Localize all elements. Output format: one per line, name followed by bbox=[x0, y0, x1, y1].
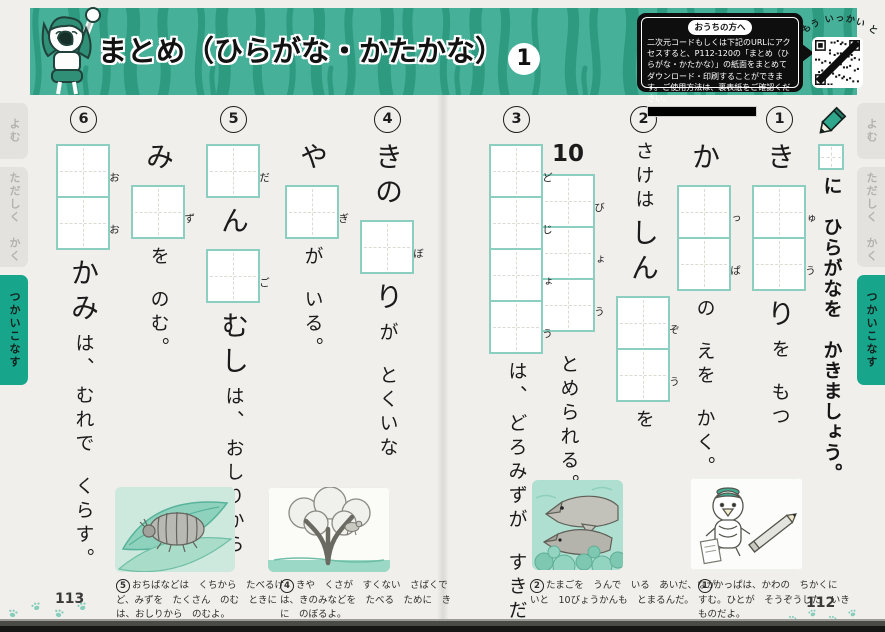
exercise-text: は、 bbox=[224, 386, 243, 434]
side-tab-label: よむ bbox=[863, 118, 879, 144]
answer-hint: び bbox=[592, 202, 607, 213]
exercise-number: 3 bbox=[503, 106, 530, 133]
exercise-text: り bbox=[373, 282, 401, 317]
qr-code-pattern bbox=[815, 40, 860, 85]
exercise-text: むし bbox=[219, 311, 247, 381]
exercise-text: を bbox=[770, 339, 789, 363]
exercise-text: は、 bbox=[507, 361, 526, 409]
side-tab-tsukaikonasu[interactable]: つかいこなす bbox=[857, 275, 885, 385]
exercise-text: いる。 bbox=[303, 289, 322, 361]
qr-caption-text: もう いっかい とく! bbox=[793, 4, 880, 37]
exercise-columns: さけはしんぞうを10びょうとめられる。 bbox=[537, 139, 674, 500]
answer-box[interactable]: う bbox=[489, 300, 543, 354]
instruction-text: に ひらがなを かきましょう。 bbox=[822, 176, 841, 484]
answer-box[interactable]: お bbox=[56, 144, 110, 198]
redacted-url-bar bbox=[647, 106, 757, 117]
exercise-columns: おおかみは、むれでくらす。 bbox=[52, 139, 114, 574]
exercise-text: とめられる。 bbox=[559, 354, 578, 498]
answer-box[interactable]: お bbox=[56, 196, 110, 250]
answer-hint: ょ bbox=[592, 254, 607, 265]
answer-box[interactable]: だ bbox=[206, 144, 260, 198]
exercise-text: さけは bbox=[634, 141, 653, 213]
caption-text: おちばなどは くちから たべるけど、みずを たくさん のむ ときには、おしりから… bbox=[116, 580, 284, 620]
salmon-illustration bbox=[532, 480, 623, 570]
exercise-text: もつ bbox=[770, 382, 789, 430]
side-tab-label: つかいこなす bbox=[863, 291, 879, 369]
workbook-spread: まとめ（ひらがな・かたかな）1 おうちの方へ 二次元コードもしくは下記のURLに… bbox=[0, 0, 885, 632]
side-tab-tsukaikonasu[interactable]: つかいこなす bbox=[0, 275, 28, 385]
answer-box[interactable]: ゅ bbox=[752, 185, 806, 239]
answer-hint: お bbox=[107, 224, 122, 235]
exercise-text: かく。 bbox=[695, 408, 714, 480]
pillbug-illustration bbox=[115, 487, 235, 572]
answer-hint: ご bbox=[257, 277, 272, 288]
answer-box[interactable]: ど bbox=[489, 144, 543, 198]
exercise-number: 5 bbox=[220, 106, 247, 133]
exercise-text: とくいな bbox=[378, 365, 397, 461]
answer-hint: ぱ bbox=[728, 265, 743, 276]
answer-box[interactable]: っ bbox=[677, 185, 731, 239]
book-bottom-edge bbox=[0, 619, 885, 632]
kappa-illustration bbox=[690, 478, 803, 570]
exercise-text: が bbox=[378, 322, 397, 346]
parents-box-inner: おうちの方へ 二次元コードもしくは下記のURLにアクセスすると、P112-120… bbox=[641, 17, 799, 88]
answer-hint: ぼ bbox=[411, 248, 426, 259]
page-title-text: まとめ（ひらがな・かたかな） bbox=[98, 34, 504, 68]
side-tab-label: ただしく かく bbox=[863, 172, 879, 263]
answer-box[interactable]: ぞ bbox=[616, 296, 670, 350]
exercise-column: きのぼりがとくいな bbox=[356, 139, 418, 463]
parents-note-box: おうちの方へ 二次元コードもしくは下記のURLにアクセスすると、P112-120… bbox=[637, 13, 803, 92]
answer-hint: う bbox=[667, 376, 682, 387]
answer-hint: う bbox=[540, 328, 555, 339]
exercise-text: えを bbox=[695, 341, 714, 389]
exercise-text: どろみずが bbox=[507, 413, 526, 533]
side-tab-label: よむ bbox=[6, 118, 22, 144]
caption-text: たまごを うんで いる あいだ、ながいと 10びょうかんも とまるんだ。 bbox=[530, 580, 716, 606]
qr-arc-caption: もう いっかい とく! bbox=[793, 4, 885, 40]
side-tab-tadashiku-kaku[interactable]: ただしく かく bbox=[0, 167, 28, 267]
parents-box-body: 二次元コードもしくは下記のURLにアクセスすると、P112-120の「まとめ（ひ… bbox=[647, 37, 793, 104]
exercise-columns: きのぼりがとくいなやぎがいる。 bbox=[281, 139, 418, 463]
horizontal-number: 10 bbox=[552, 141, 584, 167]
exercise-text: むれで bbox=[74, 385, 93, 457]
caption-text: きや くさが すくない さばくでは、きのみなどを たべる ために きに のぼるよ… bbox=[280, 580, 451, 620]
answer-box[interactable]: ず bbox=[131, 185, 185, 239]
exercise-column: さけはしんぞうを bbox=[612, 139, 674, 500]
exercise-text: が bbox=[303, 246, 322, 270]
answer-box[interactable]: ょ bbox=[489, 248, 543, 302]
exercise-text: くらす。 bbox=[74, 476, 93, 572]
exercise-text: しん bbox=[629, 218, 657, 288]
caption-exercise-5: 5おちばなどは くちから たべるけど、みずを たくさん のむ ときには、おしりか… bbox=[116, 579, 288, 623]
exercise-column: きゅうりをもつ bbox=[748, 139, 810, 482]
answer-hint: ず bbox=[182, 213, 197, 224]
answer-box[interactable]: ご bbox=[206, 249, 260, 303]
title-number-badge: 1 bbox=[508, 43, 540, 75]
side-tab-yomu[interactable]: よむ bbox=[0, 103, 28, 159]
side-tab-tadashiku-kaku[interactable]: ただしく かく bbox=[857, 167, 885, 267]
side-tab-yomu[interactable]: よむ bbox=[857, 103, 885, 159]
answer-box[interactable]: ぎ bbox=[285, 185, 339, 239]
exercise-text: きの bbox=[373, 142, 401, 212]
exercise-text: の bbox=[695, 298, 714, 322]
mascot-girl-illustration bbox=[30, 6, 108, 98]
exercise-text: を bbox=[149, 246, 168, 270]
svg-text:もう いっかい とく!: もう いっかい とく! bbox=[793, 4, 880, 37]
answer-hint: じ bbox=[540, 224, 555, 235]
answer-hint: ど bbox=[540, 172, 555, 183]
exercise-text: のむ。 bbox=[149, 289, 168, 361]
answer-box[interactable]: う bbox=[616, 348, 670, 402]
exercise-text: き bbox=[765, 142, 793, 177]
exercise-text: か bbox=[690, 142, 718, 177]
exercise-number: 4 bbox=[374, 106, 401, 133]
exercise-text: や bbox=[298, 142, 326, 177]
exercise-text: み bbox=[144, 142, 172, 177]
answer-hint: お bbox=[107, 172, 122, 183]
exercise-number: 1 bbox=[766, 106, 793, 133]
exercise-text: を bbox=[634, 409, 653, 433]
answer-box[interactable]: ぱ bbox=[677, 237, 731, 291]
caption-number: 4 bbox=[280, 579, 294, 593]
exercise-text: は、 bbox=[74, 333, 93, 381]
answer-hint: っ bbox=[728, 213, 743, 224]
side-tab-label: ただしく かく bbox=[6, 172, 22, 263]
side-tabs-right: よむただしく かくつかいこなす bbox=[857, 103, 885, 385]
exercise-columns: きゅうりをもつかっぱのえをかく。 bbox=[673, 139, 810, 482]
instruction-block: に ひらがなを かきましょう。 bbox=[813, 104, 849, 484]
caption-number: 1 bbox=[698, 579, 712, 593]
side-tabs-left: よむただしく かくつかいこなす bbox=[0, 103, 28, 385]
exercise-column: かっぱのえをかく。 bbox=[673, 139, 735, 482]
parents-box-label: おうちの方へ bbox=[688, 20, 752, 35]
exercise-text: ん bbox=[219, 206, 247, 241]
caption-number: 5 bbox=[116, 579, 130, 593]
answer-box[interactable]: ぼ bbox=[360, 220, 414, 274]
exercise-number: 6 bbox=[70, 106, 97, 133]
page-gutter-shadow bbox=[437, 95, 449, 622]
caption-number: 2 bbox=[530, 579, 544, 593]
exercise-column: やぎがいる。 bbox=[281, 139, 343, 463]
pencil-icon bbox=[813, 104, 849, 140]
answer-hint: ぎ bbox=[336, 213, 351, 224]
sample-answer-box bbox=[818, 144, 844, 170]
tree-climbing-goat-illustration bbox=[268, 487, 390, 572]
answer-hint: ぞ bbox=[667, 324, 682, 335]
exercise-column: おおかみは、むれでくらす。 bbox=[52, 139, 114, 574]
answer-box[interactable]: じ bbox=[489, 196, 543, 250]
page-title: まとめ（ひらがな・かたかな）1 bbox=[98, 28, 540, 75]
answer-hint: う bbox=[592, 306, 607, 317]
caption-exercise-2: 2たまごを うんで いる あいだ、ながいと 10びょうかんも とまるんだ。 bbox=[530, 579, 722, 608]
side-tab-label: つかいこなす bbox=[6, 291, 22, 369]
answer-hint: ょ bbox=[540, 276, 555, 287]
answer-box[interactable]: う bbox=[752, 237, 806, 291]
answer-hint: だ bbox=[257, 172, 272, 183]
qr-code bbox=[812, 37, 863, 88]
exercise-text: り bbox=[765, 299, 793, 334]
caption-exercise-4: 4きや くさが すくない さばくでは、きのみなどを たべる ために きに のぼる… bbox=[280, 579, 452, 623]
exercise-text: かみ bbox=[69, 258, 97, 328]
